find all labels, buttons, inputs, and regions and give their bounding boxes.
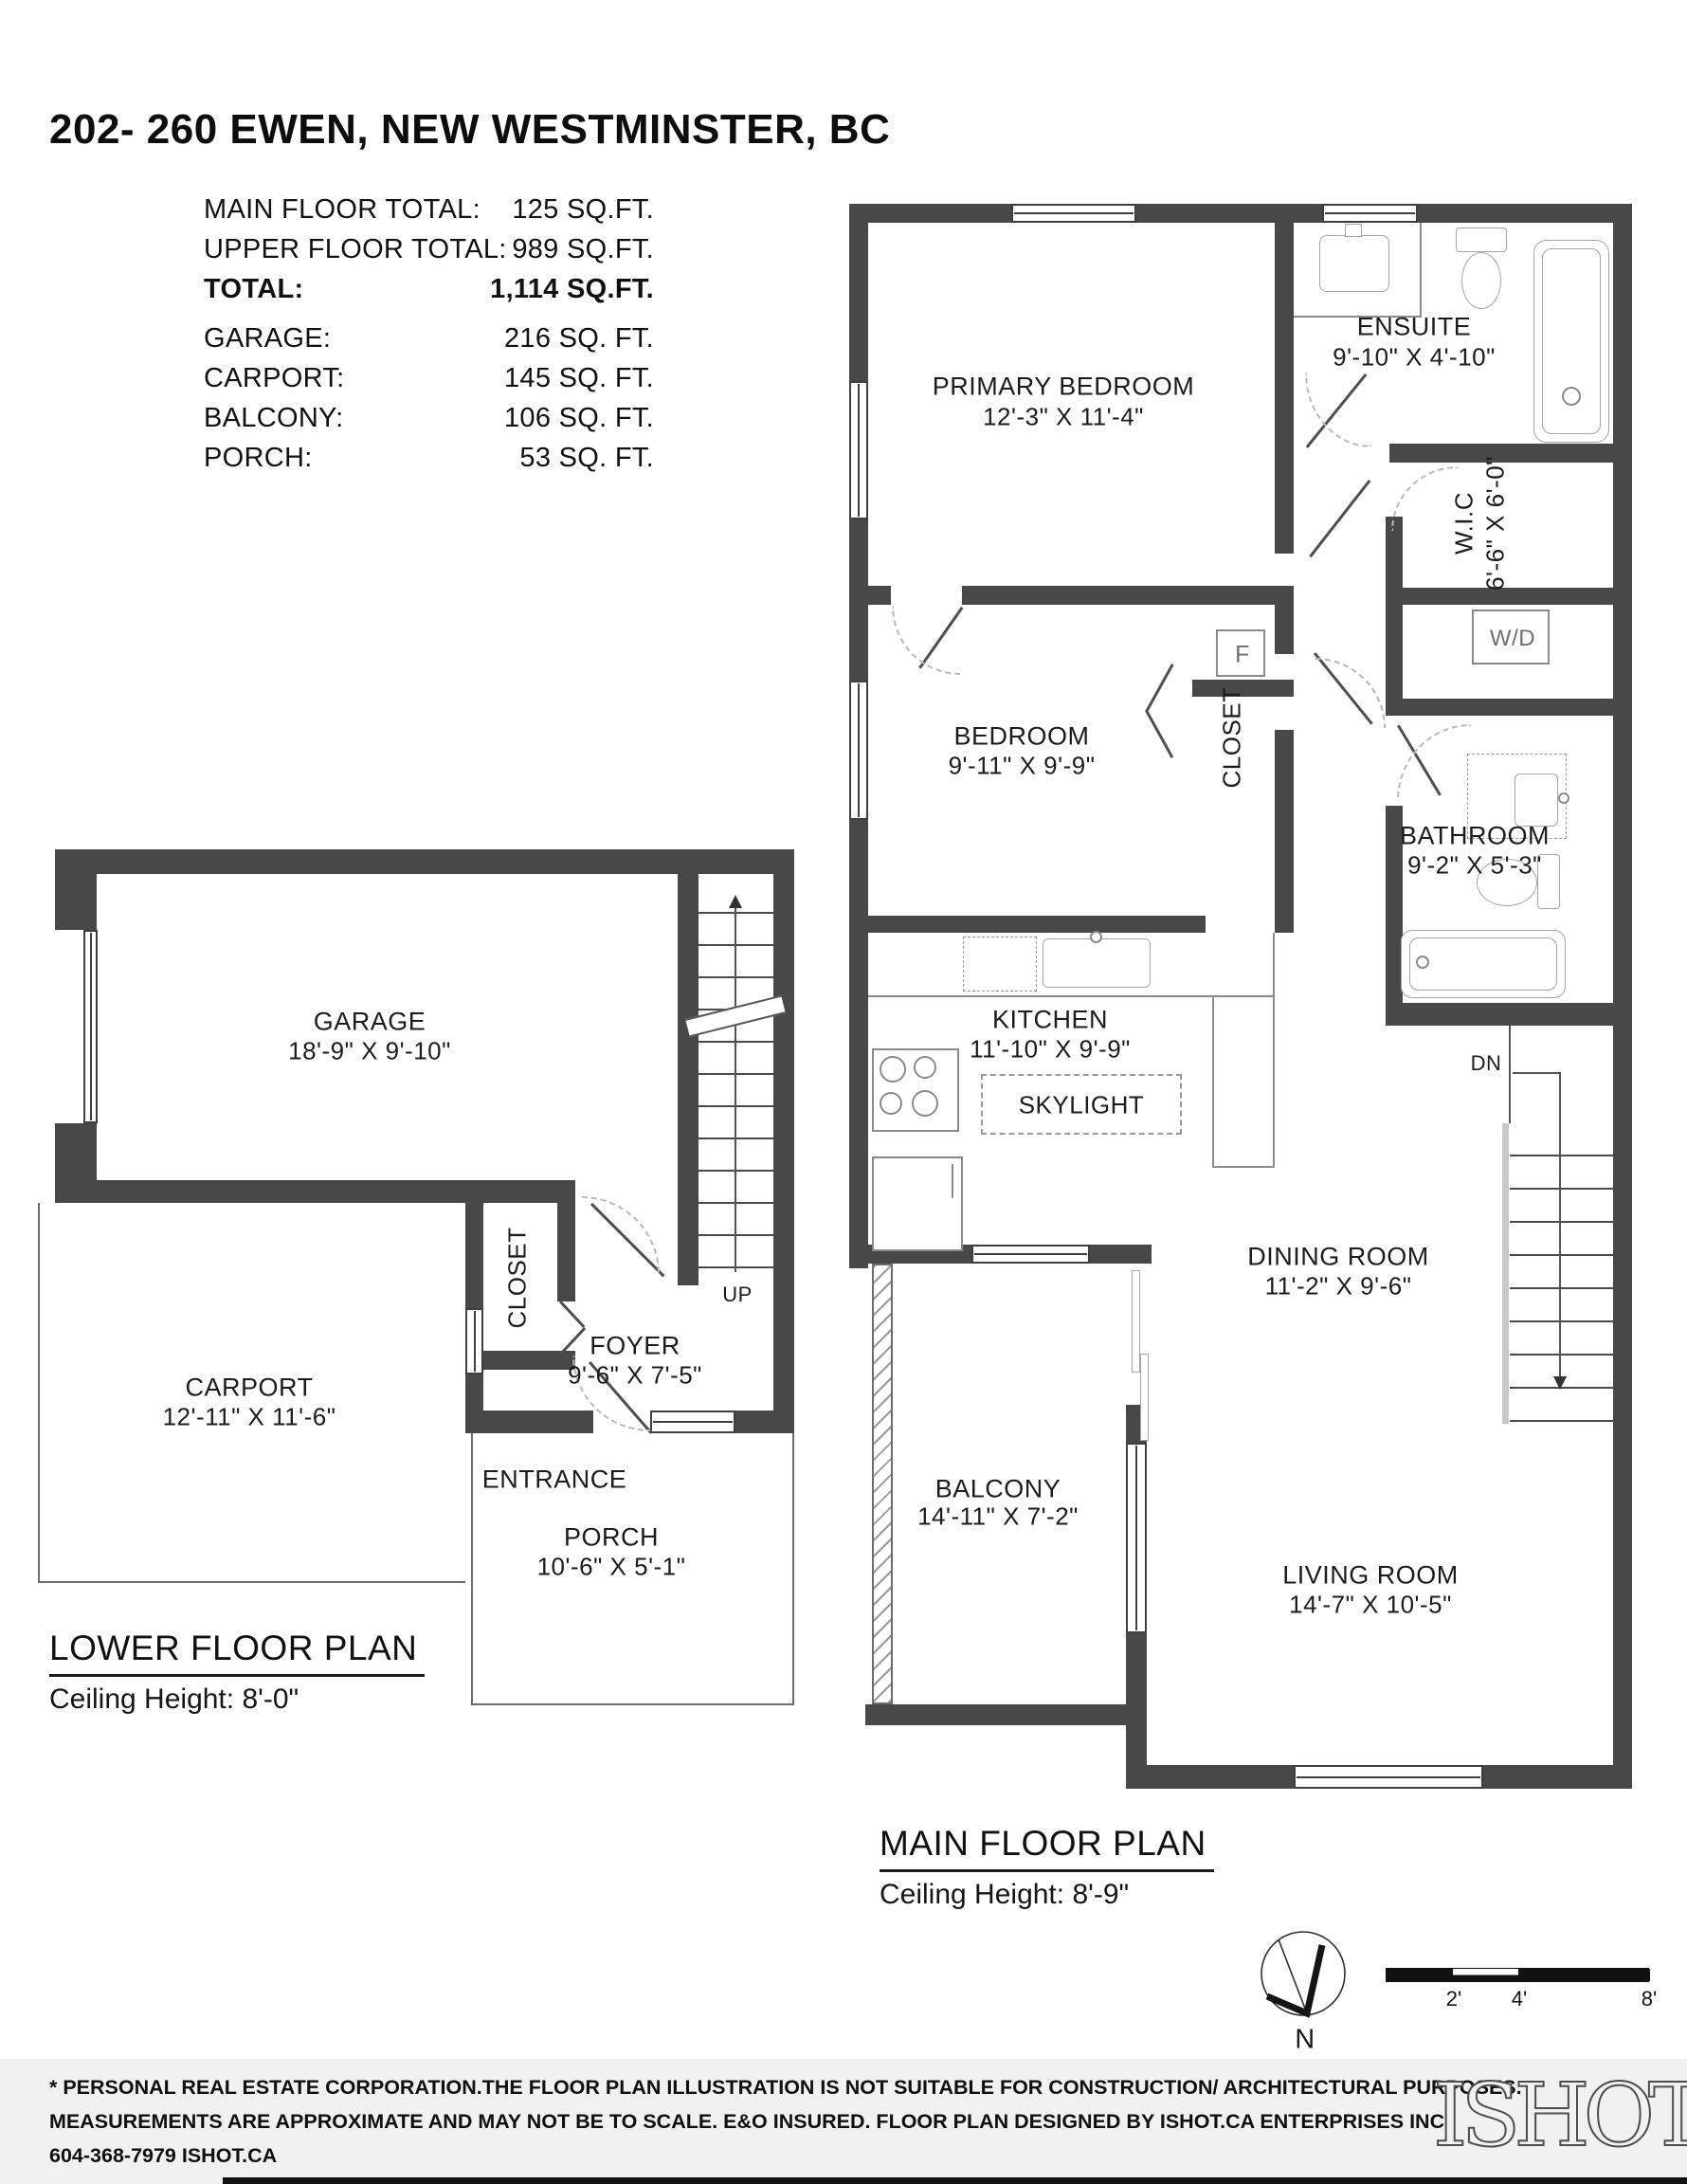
footer-disclaimer-line2: MEASUREMENTS ARE APPROXIMATE AND MAY NOT… [49, 2110, 1450, 2134]
door-leaf [1309, 480, 1370, 557]
room-dims-carport: 12'-11" X 11'-6" [163, 1403, 336, 1432]
wall [678, 849, 698, 1285]
counter-edge [1212, 1166, 1275, 1168]
scale-label: 4' [1512, 1987, 1527, 2011]
room-label-foyer: FOYER [590, 1332, 680, 1361]
label-up: UP [722, 1283, 753, 1307]
porch-edge [792, 1433, 794, 1705]
wall [849, 916, 1206, 933]
faucet-icon [1090, 931, 1102, 943]
room-label-dining: DINING ROOM [1247, 1243, 1429, 1272]
window [1294, 1765, 1483, 1789]
sliding-door-panel [1140, 1354, 1149, 1441]
faucet-icon [1558, 792, 1569, 804]
wall [471, 1351, 575, 1370]
room-dims-primary-bedroom: 12'-3" X 11'-4" [983, 403, 1144, 432]
ishot-logo: ISHOT [1433, 2065, 1687, 2166]
door-arc [892, 607, 960, 675]
room-label-closet-lower: CLOSET [503, 1227, 533, 1328]
wall [1275, 204, 1294, 554]
summary-row: GARAGE:216 SQ. FT. [204, 318, 654, 358]
summary-row: UPPER FLOOR TOTAL:989 SQ.FT. [204, 229, 654, 269]
room-dims-ensuite: 9'-10" X 4'-10" [1333, 343, 1496, 373]
sliding-door-panel [1132, 1270, 1140, 1373]
room-label-porch: PORCH [564, 1523, 659, 1553]
faucet-icon [1416, 955, 1429, 969]
bottom-bar [223, 2177, 1687, 2184]
toilet-tank [1456, 227, 1507, 252]
room-dims-living: 14'-7" X 10'-5" [1289, 1591, 1452, 1620]
door-leaf [1306, 373, 1368, 448]
corner-cabinet [963, 937, 1037, 992]
burner-icon [912, 1090, 938, 1117]
footer-contact: 604-368-7979 ISHOT.CA [49, 2144, 277, 2168]
counter-edge [1273, 933, 1275, 1166]
carport-edge [38, 1581, 465, 1583]
room-dims-bedroom: 9'-11" X 9'-9" [949, 752, 1096, 781]
main-plan-title: MAIN FLOOR PLAN [880, 1824, 1214, 1872]
stair-stringer [1502, 1123, 1509, 1424]
stair-path-line [1513, 1072, 1561, 1074]
toilet-bowl [1461, 252, 1501, 309]
summary-row: PORCH:53 SQ. FT. [204, 438, 654, 478]
window [849, 381, 868, 519]
wall [1275, 586, 1294, 654]
summary-label: MAIN FLOOR TOTAL: [204, 194, 481, 225]
lower-plan-ceiling: Ceiling Height: 8'-0" [49, 1683, 299, 1716]
wall [773, 849, 794, 1433]
bathtub-inner [1409, 937, 1557, 991]
room-dims-garage: 18'-9" X 9'-10" [288, 1037, 451, 1066]
summary-value: 1,114 SQ.FT. [490, 269, 654, 309]
door-leaf [1314, 652, 1373, 724]
area-summary: MAIN FLOOR TOTAL:125 SQ.FT. UPPER FLOOR … [204, 190, 654, 478]
summary-value: 106 SQ. FT. [504, 398, 654, 438]
garage-door [83, 930, 98, 1123]
wall [1386, 1003, 1632, 1026]
wall [849, 586, 891, 605]
summary-value: 216 SQ. FT. [504, 318, 654, 358]
window [849, 681, 868, 820]
wall [1386, 699, 1632, 716]
room-label-carport: CARPORT [185, 1374, 313, 1403]
wall [465, 1410, 593, 1433]
burner-icon [914, 1056, 936, 1079]
room-dims-porch: 10'-6" X 5'-1" [537, 1553, 686, 1582]
wall [55, 1180, 575, 1203]
wall [55, 849, 97, 930]
summary-label: CARPORT: [204, 363, 345, 393]
wall [735, 1410, 794, 1433]
sink [1515, 773, 1558, 827]
compass-north-label: N [1295, 2025, 1315, 2056]
wall [557, 1203, 575, 1301]
scale-segment [1453, 1969, 1518, 1981]
counter-edge [1212, 995, 1214, 1166]
summary-label: BALCONY: [204, 403, 343, 433]
carport-edge [38, 1203, 40, 1583]
wall [962, 586, 1294, 605]
scale-segment [1387, 1969, 1453, 1981]
window [1322, 204, 1418, 223]
counter-edge [1420, 223, 1422, 318]
wall [1613, 204, 1632, 1789]
summary-label: GARAGE: [204, 323, 331, 354]
window [1011, 204, 1136, 223]
bathtub-inner [1542, 248, 1601, 434]
compass [1246, 1924, 1360, 2038]
balcony-railing [872, 1264, 893, 1704]
room-label-kitchen: KITCHEN [992, 1006, 1108, 1035]
summary-row: BALCONY:106 SQ. FT. [204, 398, 654, 438]
room-dims-kitchen: 11'-10" X 9'-9" [970, 1035, 1131, 1065]
sink [1319, 235, 1389, 292]
bifold-door [559, 1301, 585, 1328]
burner-icon [880, 1056, 906, 1083]
label-entrance: ENTRANCE [482, 1465, 627, 1495]
compass-icon [1246, 1924, 1360, 2038]
room-label-ensuite: ENSUITE [1357, 313, 1472, 342]
faucet-icon [1345, 224, 1362, 237]
furnace: F [1216, 629, 1265, 677]
summary-row-total: TOTAL:1,114 SQ.FT. [204, 269, 654, 309]
floor-plan-page: 202- 260 EWEN, NEW WESTMINSTER, BC MAIN … [0, 0, 1687, 2184]
room-label-garage: GARAGE [314, 1008, 426, 1037]
lower-plan-title: LOWER FLOOR PLAN [49, 1629, 425, 1677]
wall [849, 204, 1632, 223]
summary-value: 145 SQ. FT. [504, 358, 654, 398]
summary-value: 53 SQ. FT. [519, 438, 654, 478]
room-dims-dining: 11'-2" X 9'-6" [1265, 1272, 1412, 1301]
window [465, 1308, 483, 1374]
bifold-door [1145, 710, 1173, 758]
room-dims-foyer: 9'-6" X 7'-5" [568, 1361, 702, 1391]
summary-row: MAIN FLOOR TOTAL:125 SQ.FT. [204, 190, 654, 229]
room-label-wic: W.I.C [1450, 492, 1479, 555]
page-title: 202- 260 EWEN, NEW WESTMINSTER, BC [49, 106, 890, 154]
summary-label: PORCH: [204, 443, 313, 473]
stair-path-line [735, 902, 736, 1272]
room-label-primary-bedroom: PRIMARY BEDROOM [933, 373, 1195, 402]
summary-label: UPPER FLOOR TOTAL: [204, 234, 507, 264]
stair-landing-line [1509, 1026, 1511, 1123]
room-label-living: LIVING ROOM [1282, 1561, 1459, 1591]
window [1126, 1443, 1147, 1633]
porch-edge [471, 1703, 794, 1705]
label-skylight: SKYLIGHT [1019, 1091, 1145, 1120]
washer-dryer: W/D [1472, 610, 1550, 664]
main-plan-ceiling: Ceiling Height: 8'-9" [880, 1879, 1129, 1911]
furnace-label: F [1235, 642, 1250, 669]
bifold-door [1145, 664, 1173, 712]
porch-edge [471, 1433, 473, 1705]
stair-path-line [1559, 1072, 1561, 1385]
fridge-handle [952, 1164, 953, 1198]
room-label-bathroom: BATHROOM [1400, 822, 1550, 851]
summary-value: 125 SQ.FT. [512, 190, 654, 229]
room-dims-balcony: 14'-11" X 7'-2" [917, 1502, 1079, 1532]
kitchen-sink [1043, 938, 1151, 988]
fridge [872, 1156, 963, 1251]
door-leaf [1397, 724, 1442, 795]
scale-label: 8' [1642, 1987, 1657, 2011]
washer-dryer-label: W/D [1490, 626, 1535, 652]
footer-disclaimer-line1: * PERSONAL REAL ESTATE CORPORATION.THE F… [49, 2076, 1522, 2100]
scale-label: 2' [1446, 1987, 1461, 2011]
burner-icon [880, 1092, 902, 1115]
scale-bar [1386, 1968, 1649, 1982]
room-dims-bathroom: 9'-2" X 5'-3" [1407, 851, 1542, 881]
room-dims-wic: 6'-6" X 6'-0" [1481, 456, 1511, 591]
summary-label: TOTAL: [204, 274, 303, 304]
window [650, 1410, 735, 1433]
room-label-closet-main: CLOSET [1218, 686, 1247, 788]
summary-row: CARPORT:145 SQ. FT. [204, 358, 654, 398]
room-label-bedroom: BEDROOM [953, 722, 1089, 752]
drain-icon [1562, 387, 1581, 406]
stair-arrow-up [729, 895, 742, 908]
wall [1275, 730, 1294, 933]
wall [865, 1704, 1147, 1725]
summary-value: 989 SQ.FT. [512, 229, 654, 269]
label-dn: DN [1471, 1051, 1502, 1076]
wall [1389, 444, 1632, 463]
stair-arrow-down [1553, 1376, 1567, 1390]
window [971, 1245, 1090, 1264]
room-label-balcony: BALCONY [935, 1475, 1061, 1504]
door-leaf [590, 1203, 664, 1277]
door-leaf [918, 607, 963, 669]
scale-segment [1518, 1969, 1650, 1981]
wall [1386, 605, 1403, 699]
